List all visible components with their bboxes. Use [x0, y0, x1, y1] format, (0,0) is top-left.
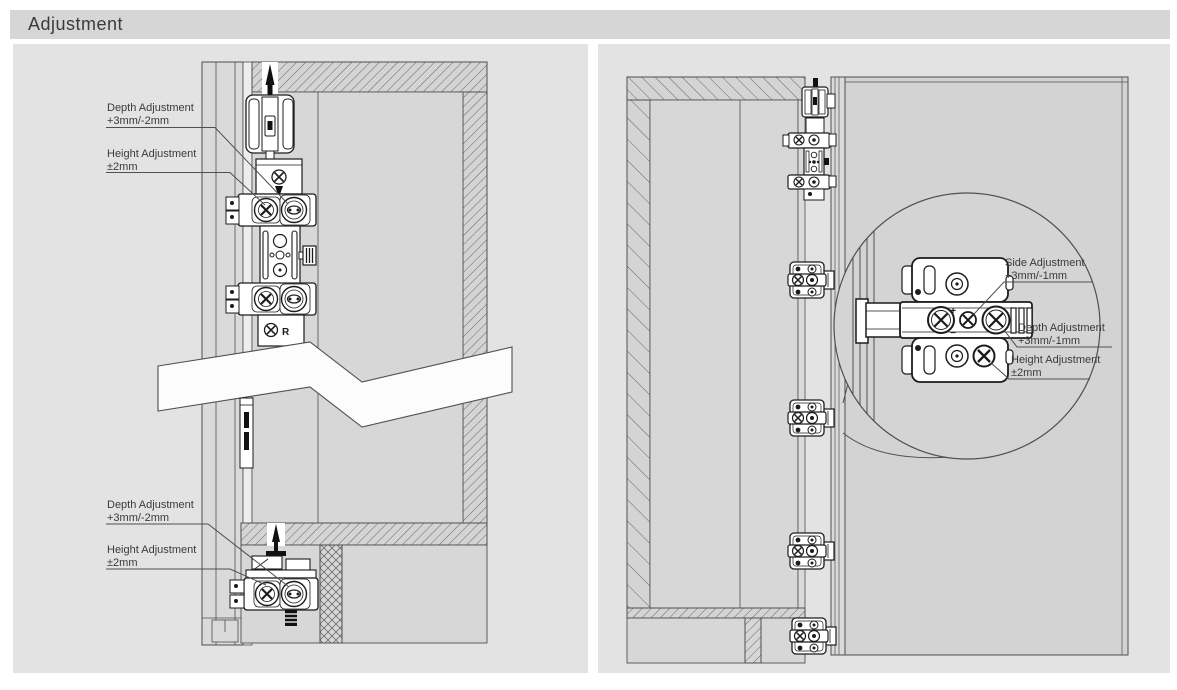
label-line: Depth Adjustment: [107, 499, 194, 511]
label-line: ±2mm: [1011, 367, 1041, 379]
depth-adjustment-screw-enlarged: [983, 307, 1010, 334]
cabinet-top-panel: [252, 62, 487, 92]
section-title-bar: Adjustment: [10, 10, 1170, 39]
plus-mark: +: [950, 306, 956, 317]
height-adjustment-screw: [255, 199, 278, 222]
label-line: +3mm/-1mm: [1005, 270, 1067, 282]
label-line: Depth Adjustment: [107, 102, 194, 114]
r-marked-plate: R: [258, 315, 304, 346]
height-adjustment-screw-bottom: [256, 583, 279, 606]
cabinet-side-panel: [463, 92, 487, 523]
label-line: ±2mm: [107, 161, 137, 173]
spring-pin-unit: [246, 95, 294, 159]
label-line: Height Adjustment: [1011, 354, 1100, 366]
catalog-page: Adjustment: [0, 0, 1177, 690]
label-line: Depth Adjustment: [1018, 322, 1105, 334]
label-line: +3mm/-1mm: [1018, 335, 1080, 347]
r-mark: R: [282, 327, 290, 338]
cabinet-top-panel-right: [627, 77, 805, 100]
guide-rail-segment: [240, 398, 253, 468]
threaded-stud: [285, 610, 297, 626]
side-adjustment-cam: [960, 312, 976, 328]
cabinet-bottom-panel: [627, 608, 805, 618]
label-line: +3mm/-2mm: [107, 512, 169, 524]
cabinet-left-side-panel: [627, 100, 650, 608]
right-cabinet-section: [627, 77, 805, 663]
adjustment-screw-row-upper: [226, 194, 316, 226]
section-title: Adjustment: [28, 14, 123, 35]
adjustment-diagram: R: [0, 0, 1177, 690]
cabinet-interior-right: [650, 100, 798, 608]
depth-adjustment-screw-bottom: [282, 582, 307, 607]
adjustment-screw-row-lower: [226, 283, 316, 315]
label-line: ±2mm: [107, 557, 137, 569]
cabinet-plinth: [627, 618, 805, 663]
label-line: Height Adjustment: [107, 544, 196, 556]
label-line: Side Adjustment: [1005, 257, 1085, 269]
label-line: +3mm/-2mm: [107, 115, 169, 127]
label-line: Height Adjustment: [107, 148, 196, 160]
